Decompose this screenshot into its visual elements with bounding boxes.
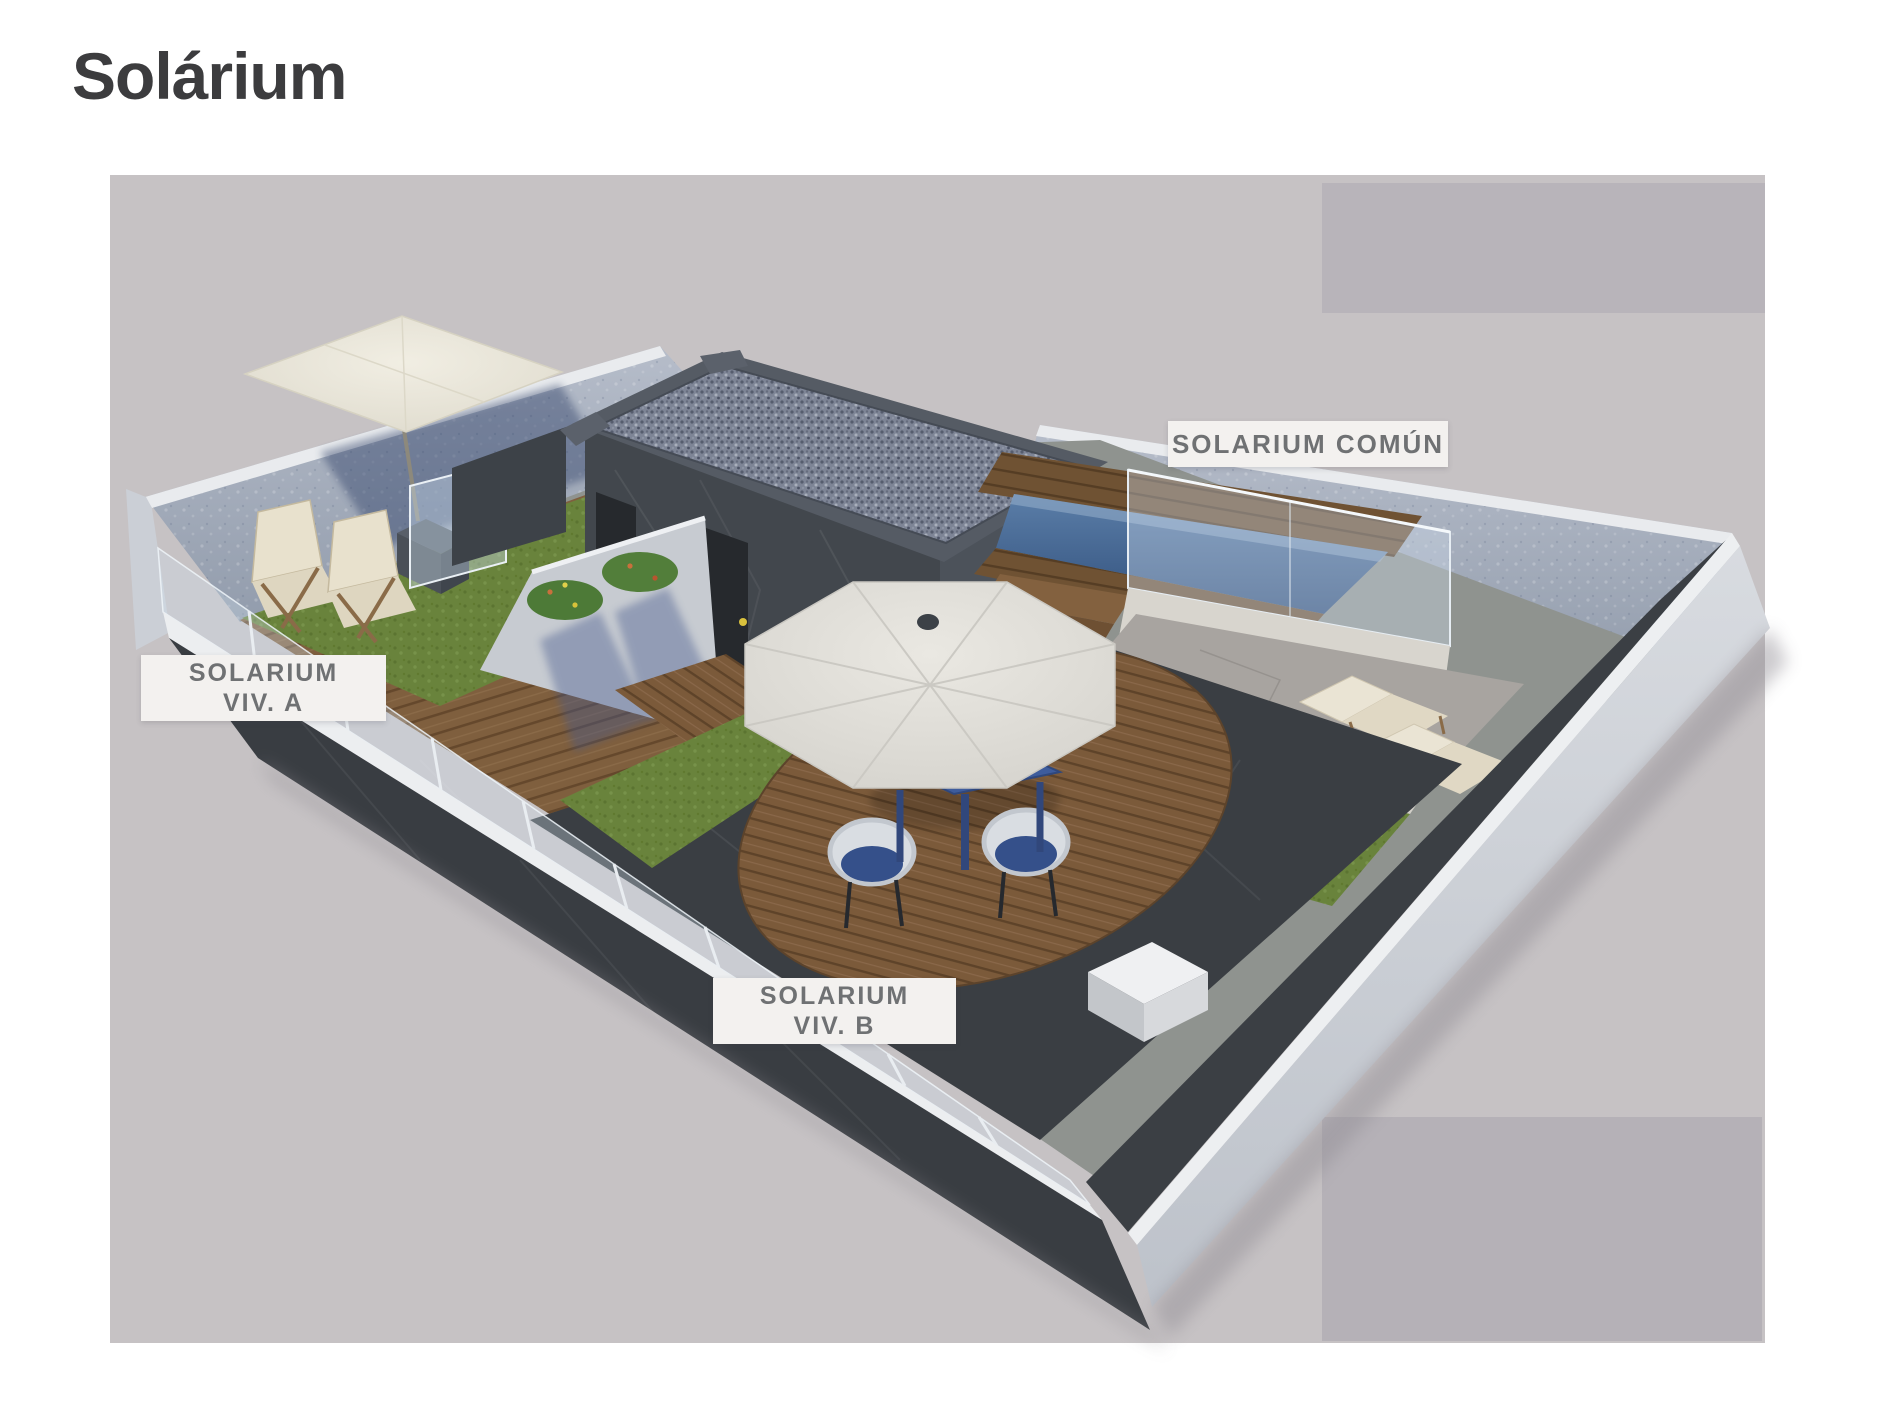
octagonal-umbrella (745, 582, 1115, 788)
label-text: SOLARIUM (713, 981, 956, 1011)
background-panel-top-right (1322, 183, 1765, 313)
background-panel-bottom-right (1322, 1117, 1762, 1341)
label-text: VIV. A (141, 688, 386, 718)
label-solarium-viv-b: SOLARIUM VIV. B (713, 978, 956, 1044)
label-text: VIV. B (713, 1011, 956, 1041)
label-text: SOLARIUM COMÚN (1168, 421, 1448, 467)
solarium-page: Solárium (0, 0, 1891, 1425)
label-text: SOLARIUM (141, 658, 386, 688)
label-solarium-viv-a: SOLARIUM VIV. A (141, 655, 386, 721)
planter-plants (602, 552, 678, 592)
umbrella-finial (917, 614, 939, 630)
label-solarium-comun: SOLARIUM COMÚN (1168, 421, 1448, 467)
door-light (739, 618, 747, 626)
